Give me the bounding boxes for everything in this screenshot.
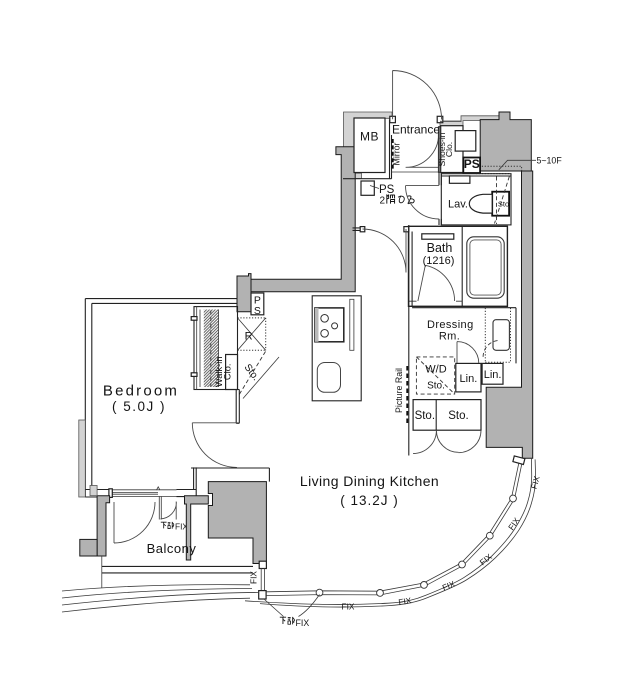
svg-text:Sto: Sto: [498, 200, 509, 209]
svg-text:FIX: FIX: [296, 618, 310, 628]
svg-text:5~10F: 5~10F: [537, 156, 563, 166]
svg-text:Lin.: Lin.: [460, 373, 478, 385]
svg-text:Sto.: Sto.: [415, 410, 435, 422]
svg-text:Rm.: Rm.: [439, 331, 460, 343]
svg-text:( 13.2J ): ( 13.2J ): [340, 493, 399, 508]
svg-text:MB: MB: [360, 130, 379, 144]
svg-text:S: S: [254, 305, 261, 317]
svg-text:Sto.: Sto.: [448, 410, 468, 422]
svg-text:Living Dining Kitchen: Living Dining Kitchen: [300, 473, 439, 489]
svg-text:FIX: FIX: [248, 571, 258, 584]
svg-text:FIX: FIX: [342, 601, 355, 611]
svg-text:Clo.: Clo.: [222, 364, 232, 381]
svg-text:W/D: W/D: [425, 364, 446, 376]
svg-text:PS: PS: [464, 157, 480, 171]
svg-text:Balcony: Balcony: [147, 541, 197, 556]
svg-text:R: R: [245, 330, 253, 342]
svg-text:( 5.0J ): ( 5.0J ): [112, 399, 166, 414]
svg-text:Clo.: Clo.: [444, 142, 454, 157]
svg-text:Sto.: Sto.: [427, 380, 445, 391]
svg-text:Picture Rail: Picture Rail: [394, 368, 404, 413]
svg-text:Entrance: Entrance: [392, 122, 440, 136]
svg-text:Bedroom: Bedroom: [103, 382, 179, 399]
svg-text:PS: PS: [379, 184, 395, 196]
svg-text:2: 2: [380, 195, 386, 206]
svg-text:Dressing: Dressing: [427, 319, 474, 331]
svg-text:Lav.: Lav.: [448, 199, 468, 211]
svg-text:Bath: Bath: [427, 241, 453, 255]
svg-text:Mirror: Mirror: [392, 142, 402, 165]
svg-text:Lin.: Lin.: [484, 369, 502, 381]
svg-text:(1216): (1216): [423, 255, 455, 267]
